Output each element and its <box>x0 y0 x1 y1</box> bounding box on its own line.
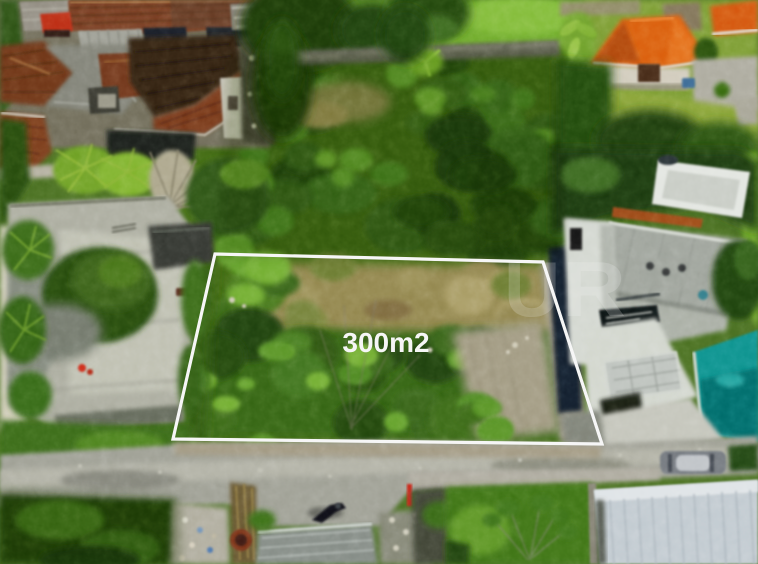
svg-text:300m2: 300m2 <box>342 327 429 358</box>
svg-text:R: R <box>562 245 626 333</box>
